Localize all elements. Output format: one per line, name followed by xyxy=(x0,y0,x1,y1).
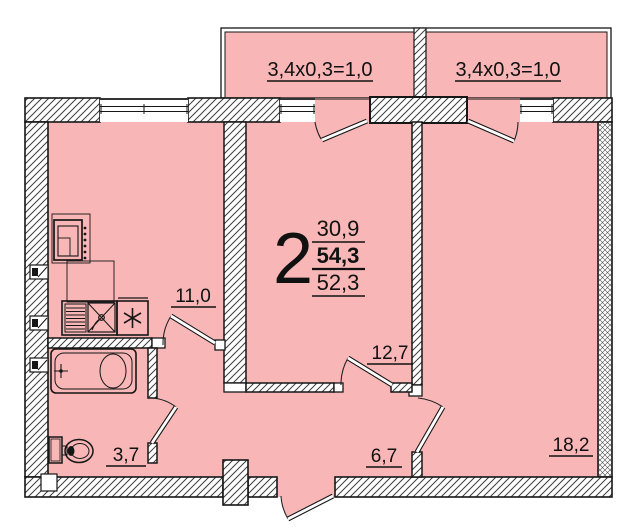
bedroom-window xyxy=(520,98,553,122)
living-hall-wall xyxy=(246,383,334,392)
vent-box-icon xyxy=(30,265,48,279)
room-count-label: 2 xyxy=(273,219,313,299)
top-wall-segment xyxy=(25,98,100,122)
top-wall-pier xyxy=(370,97,467,123)
bottom-wall-segment xyxy=(248,477,277,497)
wall-end-cap xyxy=(224,383,246,392)
bedroom-door-post xyxy=(412,452,422,477)
kitchen-area-label: 11,0 xyxy=(175,286,211,307)
kitchen-living-wall xyxy=(224,122,246,383)
apartment-floor xyxy=(25,98,612,497)
wall-niche xyxy=(41,474,57,491)
floor-plan-svg: 3,4x0,3=1,0 3,4x0,3=1,0 2 30,9 54,3 52,3… xyxy=(0,0,640,529)
living-hall-wall-stub xyxy=(391,383,412,392)
bottom-wall-segment xyxy=(335,477,612,497)
left-wall xyxy=(25,122,48,477)
balcony-divider-wall xyxy=(414,28,426,98)
living-area-label: 30,9 xyxy=(317,216,360,241)
bathroom-door-post xyxy=(148,443,157,463)
vent-box-icon xyxy=(30,358,48,372)
hall-area-label: 6,7 xyxy=(371,446,397,467)
bathroom-top-wall xyxy=(48,338,152,348)
top-wall-segment xyxy=(553,98,612,122)
bathroom-right-wall xyxy=(148,348,157,398)
top-wall-segment xyxy=(188,98,280,122)
right-wall xyxy=(598,122,612,477)
living-area-room-label: 12,7 xyxy=(372,343,409,364)
door-jamb xyxy=(215,340,225,350)
balcony-right-area-label: 3,4x0,3=1,0 xyxy=(455,59,560,81)
reduced-area-label: 52,3 xyxy=(317,270,360,295)
kitchen-window xyxy=(100,98,188,122)
floor-plan-page: 3,4x0,3=1,0 3,4x0,3=1,0 2 30,9 54,3 52,3… xyxy=(0,0,640,529)
living-room-window xyxy=(280,98,315,122)
entry-pier xyxy=(223,460,248,505)
living-bedroom-wall xyxy=(412,122,422,385)
vent-box-icon xyxy=(30,316,48,330)
balcony-left-area-label: 3,4x0,3=1,0 xyxy=(267,59,372,81)
door-jamb xyxy=(334,383,343,392)
bedroom-area-label: 18,2 xyxy=(553,435,590,456)
total-area-label: 54,3 xyxy=(317,243,360,268)
bathroom-area-label: 3,7 xyxy=(113,445,139,466)
